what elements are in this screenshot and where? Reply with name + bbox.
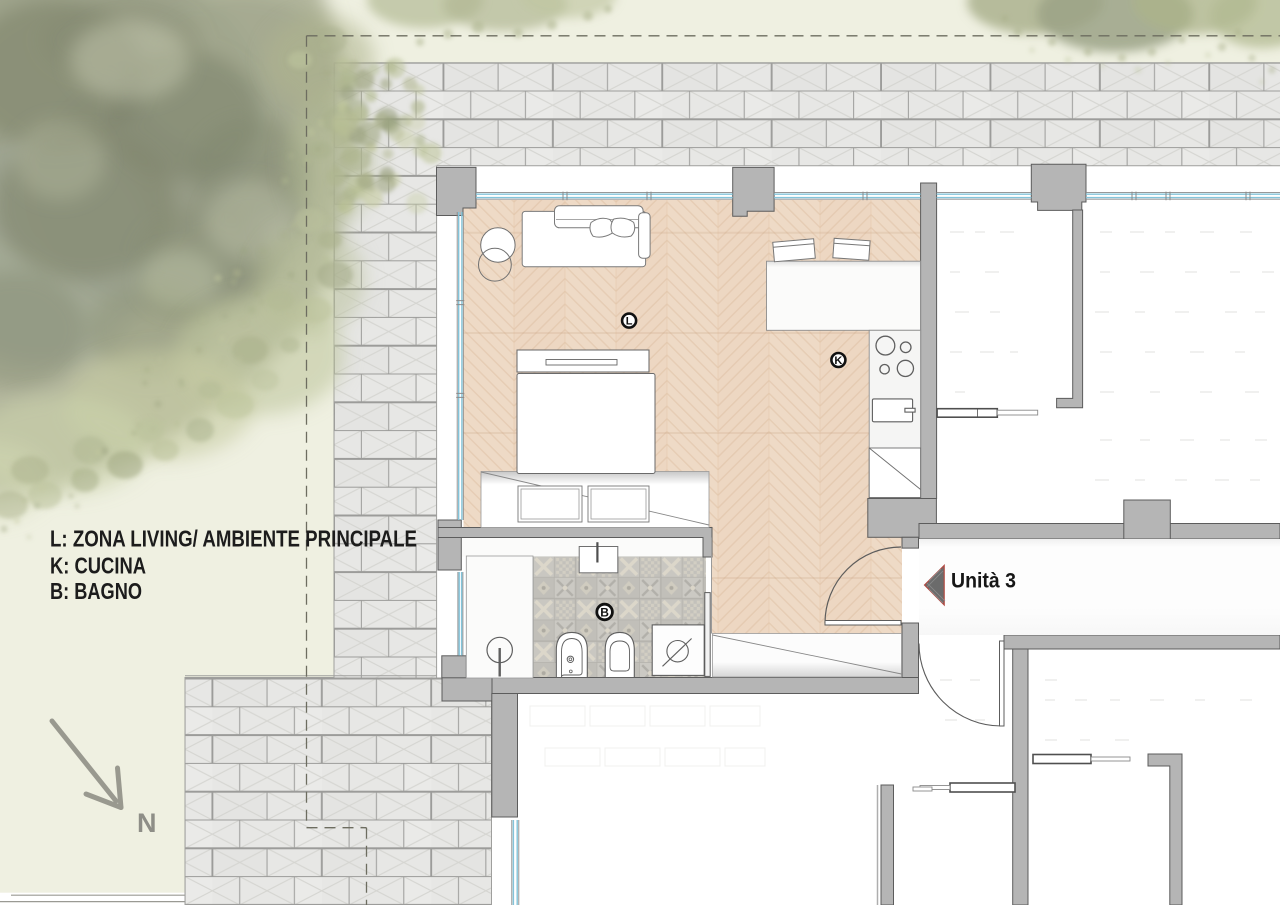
- svg-text:L: L: [626, 316, 633, 328]
- svg-text:Unità 3: Unità 3: [951, 570, 1016, 593]
- svg-text:B: BAGNO: B: BAGNO: [50, 578, 142, 604]
- svg-text:K: CUCINA: K: CUCINA: [50, 553, 146, 579]
- svg-text:L: ZONA LIVING/ AMBIENTE PRINC: L: ZONA LIVING/ AMBIENTE PRINCIPALE: [50, 526, 417, 552]
- svg-text:B: B: [600, 606, 609, 620]
- svg-text:N: N: [137, 808, 157, 838]
- svg-text:K: K: [834, 355, 842, 367]
